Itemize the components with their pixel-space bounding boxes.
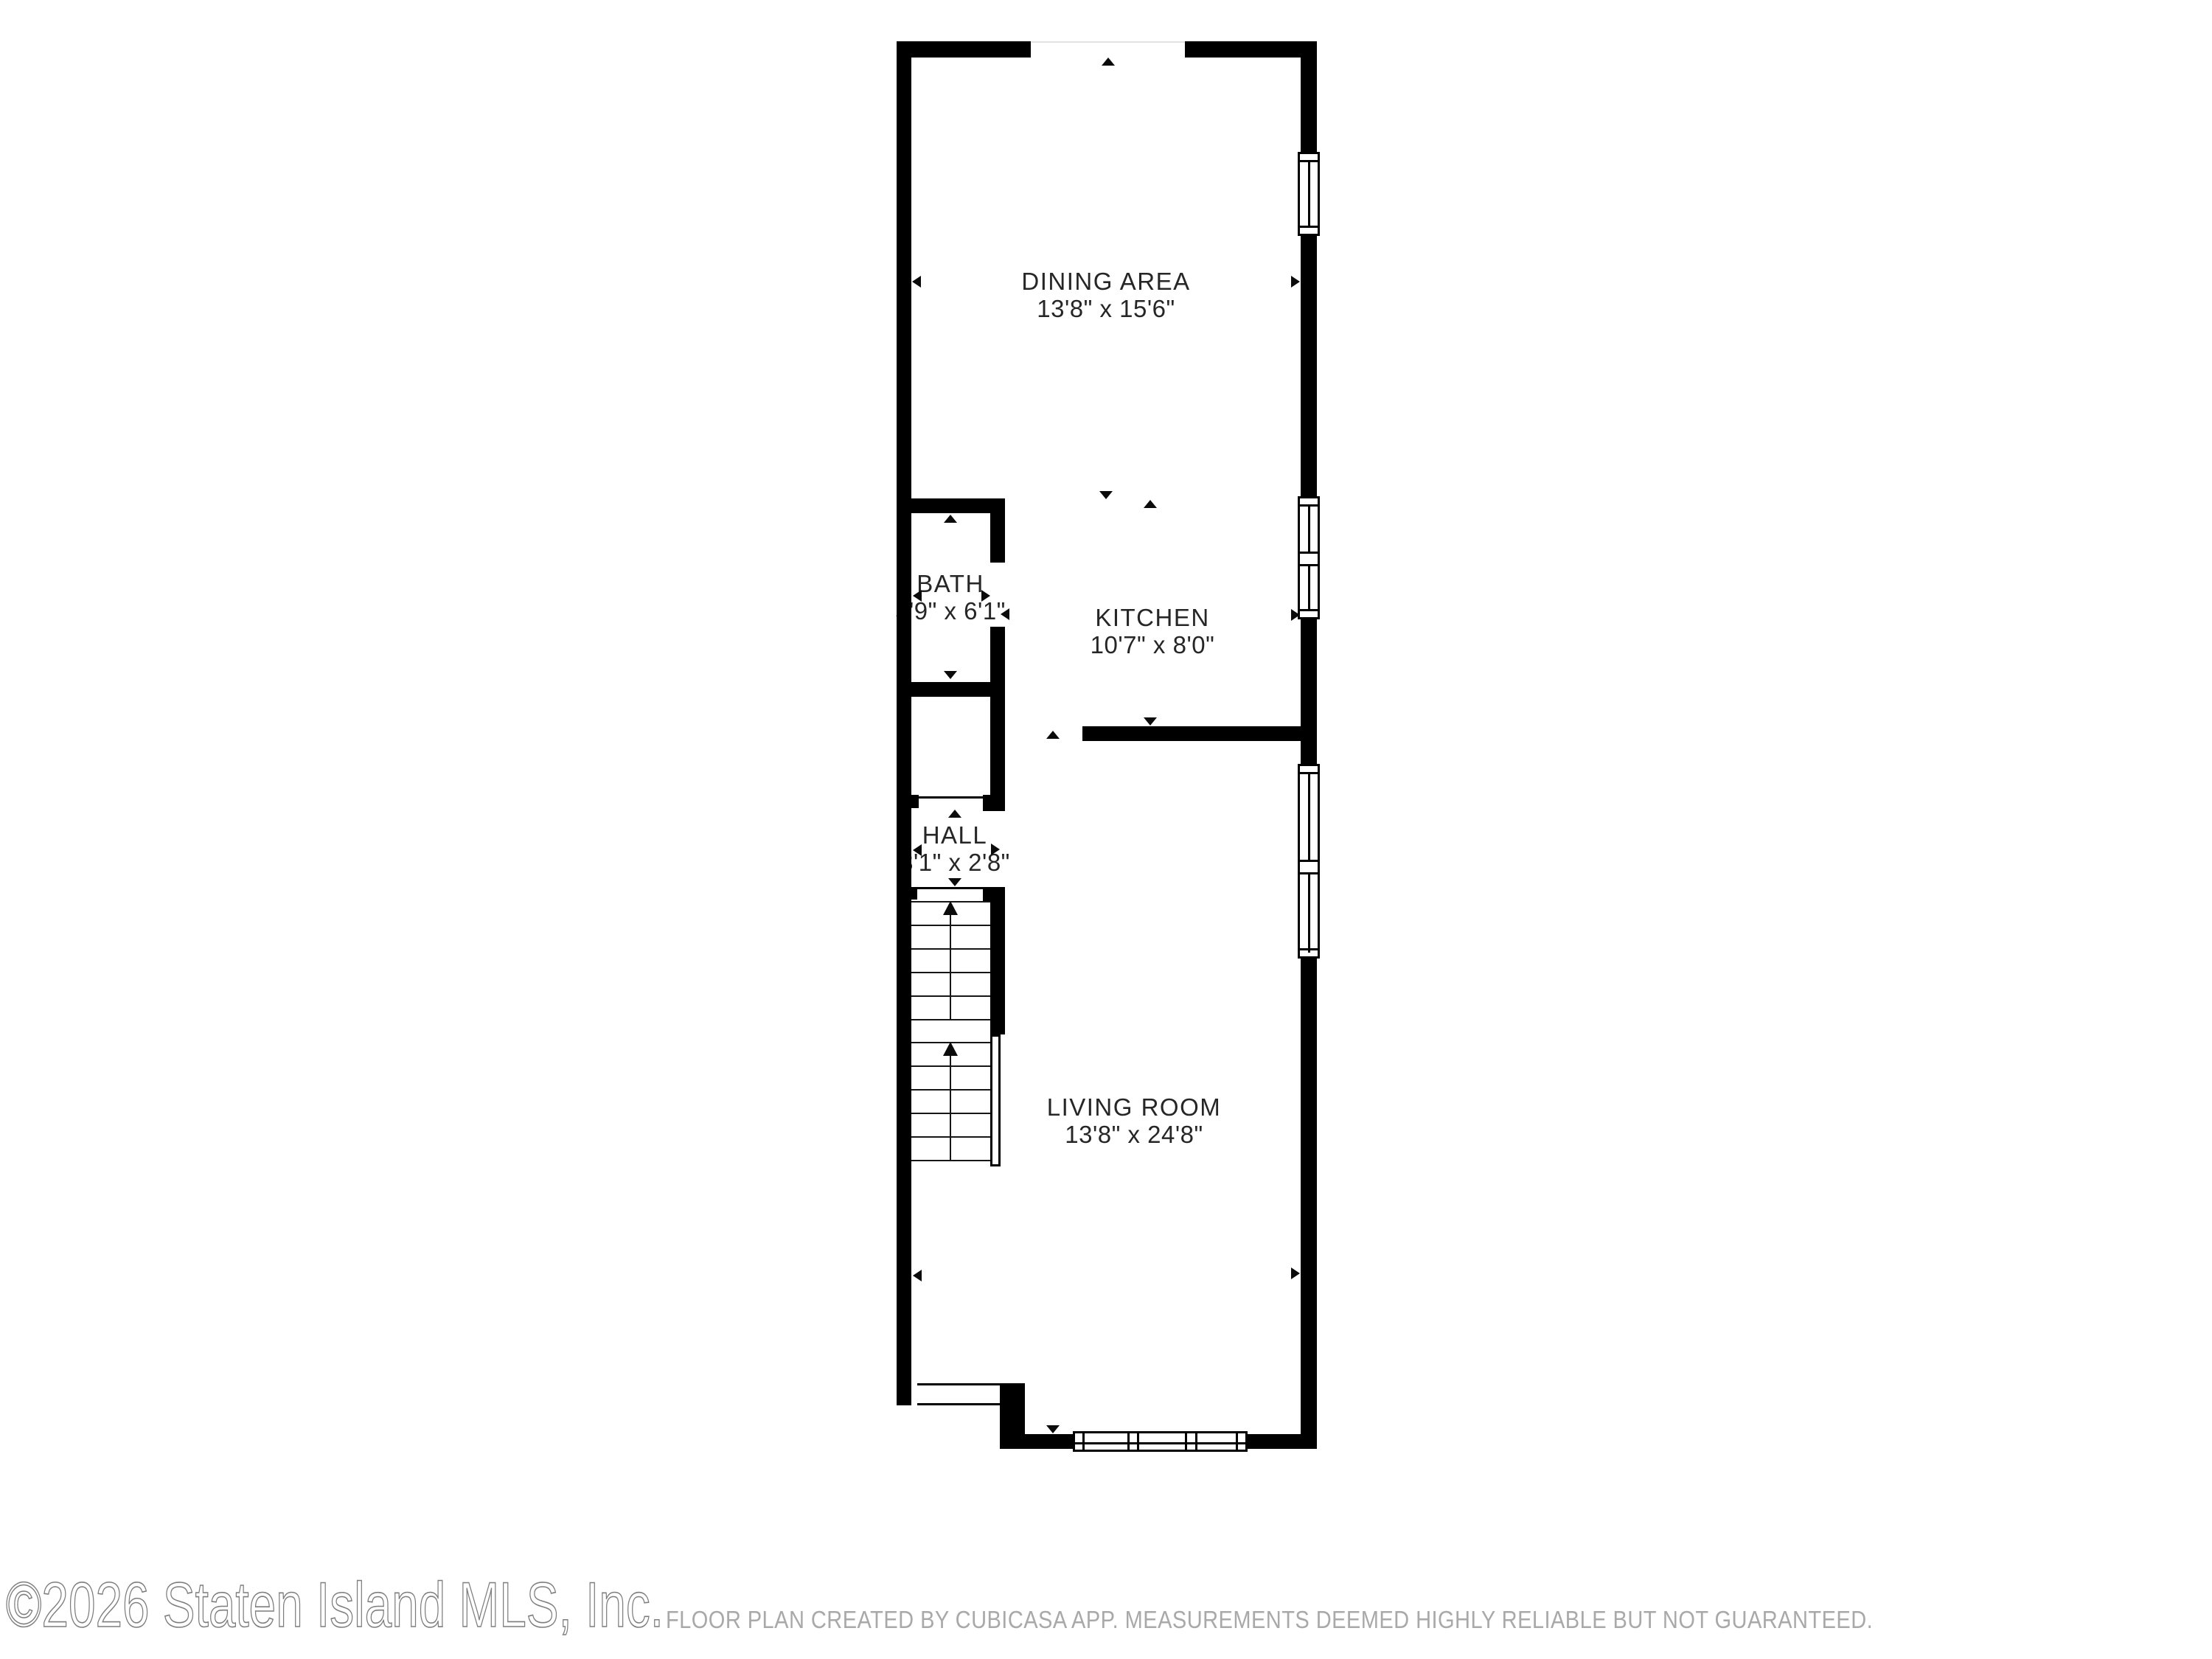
- hall-arrow-down-icon: [948, 878, 961, 886]
- living-room-name: LIVING ROOM: [1047, 1093, 1222, 1121]
- living-side-window-icon: [1298, 764, 1320, 959]
- hall-arrow-up-icon: [948, 810, 961, 818]
- dining-room-dimensions: 13'8" x 15'6": [1021, 295, 1190, 322]
- notch-window-icon: [917, 1383, 1000, 1405]
- top-wall-right-segment: [1185, 41, 1317, 58]
- bath-right-wall-upper: [990, 498, 1005, 563]
- living-room-dimensions: 13'8" x 24'8": [1047, 1121, 1222, 1148]
- living-arrow-down-icon: [1046, 1425, 1060, 1433]
- bath-arrow-right-icon: [981, 590, 990, 602]
- kitchen-arrow-up-icon: [1144, 500, 1157, 508]
- kitchen-living-divider-wall: [1082, 726, 1317, 741]
- bath-right-wall-lower: [990, 627, 1005, 811]
- right-wall: [1301, 41, 1317, 1449]
- living-arrow-up-icon: [1046, 731, 1060, 739]
- dining-arrow-down-icon: [1099, 491, 1113, 499]
- top-wall-left-segment: [897, 41, 1031, 58]
- stairs-railing: [990, 1034, 1001, 1166]
- dining-window-icon: [1298, 152, 1320, 236]
- left-wall: [897, 41, 911, 1405]
- disclaimer-text: FLOOR PLAN CREATED BY CUBICASA APP. MEAS…: [666, 1606, 1873, 1634]
- dining-arrow-left-icon: [912, 276, 921, 288]
- stairs-upper-arrow-icon: [943, 901, 958, 915]
- kitchen-arrow-left-icon: [1001, 608, 1009, 620]
- entry-arrow-up-icon: [1102, 58, 1115, 66]
- dining-arrow-right-icon: [1291, 276, 1300, 288]
- entry-opening-line: [1031, 41, 1185, 43]
- notch-corner-block: [1000, 1383, 1025, 1449]
- kitchen-room-dimensions: 10'7" x 8'0": [1091, 631, 1215, 658]
- stairs-lower-direction-line: [950, 1055, 951, 1160]
- hall-top-threshold: [911, 796, 990, 799]
- floor-plan-page: DINING AREA 13'8" x 15'6" BATH 5'9" x 6'…: [0, 0, 2212, 1659]
- hall-arrow-right-icon: [991, 844, 1000, 855]
- bath-arrow-down-icon: [944, 671, 957, 679]
- kitchen-window-icon: [1298, 496, 1320, 619]
- hall-arrow-left-icon: [913, 844, 922, 856]
- dining-room-name: DINING AREA: [1021, 268, 1190, 295]
- living-front-window-icon: [1073, 1431, 1248, 1452]
- kitchen-arrow-right-icon: [1291, 609, 1300, 621]
- stairs-upper-direction-line: [950, 914, 951, 1020]
- stair-right-wall: [990, 901, 1005, 1034]
- living-arrow-left-icon: [913, 1270, 922, 1281]
- room-label-dining: DINING AREA 13'8" x 15'6": [1021, 268, 1190, 322]
- mls-watermark: ©2026 Staten Island MLS, Inc.: [1, 1566, 695, 1647]
- room-label-kitchen: KITCHEN 10'7" x 8'0": [1091, 604, 1215, 658]
- stairs-lower-arrow-icon: [943, 1042, 958, 1056]
- bath-arrow-left-icon: [913, 590, 922, 602]
- living-arrow-right-icon: [1291, 1267, 1300, 1279]
- bath-arrow-up-icon: [944, 515, 957, 523]
- bath-bottom-wall: [911, 682, 1005, 697]
- room-label-living: LIVING ROOM 13'8" x 24'8": [1047, 1093, 1222, 1148]
- kitchen-arrow-down-icon: [1144, 717, 1157, 726]
- hall-bottom-threshold: [911, 887, 990, 889]
- watermark-text: ©2026 Staten Island MLS, Inc.: [6, 1570, 664, 1641]
- kitchen-room-name: KITCHEN: [1091, 604, 1215, 631]
